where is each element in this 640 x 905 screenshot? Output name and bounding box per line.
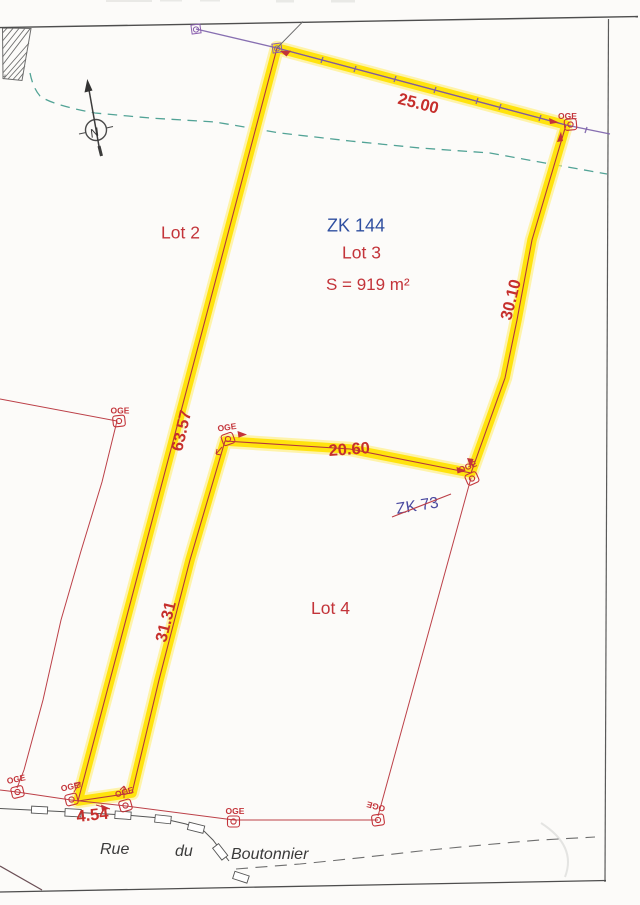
svg-text:OGE: OGE xyxy=(558,111,577,121)
svg-text:Lot 3: Lot 3 xyxy=(342,243,381,263)
svg-text:du: du xyxy=(175,843,193,860)
svg-text:OGE: OGE xyxy=(111,406,130,416)
svg-text:20.60: 20.60 xyxy=(328,439,370,460)
svg-text:Lot 4: Lot 4 xyxy=(311,598,350,618)
svg-text:4.54: 4.54 xyxy=(76,805,111,826)
svg-text:OGE: OGE xyxy=(226,806,245,816)
svg-text:Lot 2: Lot 2 xyxy=(161,223,200,243)
svg-text:S = 919 m²: S = 919 m² xyxy=(326,275,410,294)
svg-text:Rue: Rue xyxy=(100,841,129,858)
svg-text:ZK 144: ZK 144 xyxy=(327,216,385,236)
svg-text:Boutonnier: Boutonnier xyxy=(231,846,309,863)
